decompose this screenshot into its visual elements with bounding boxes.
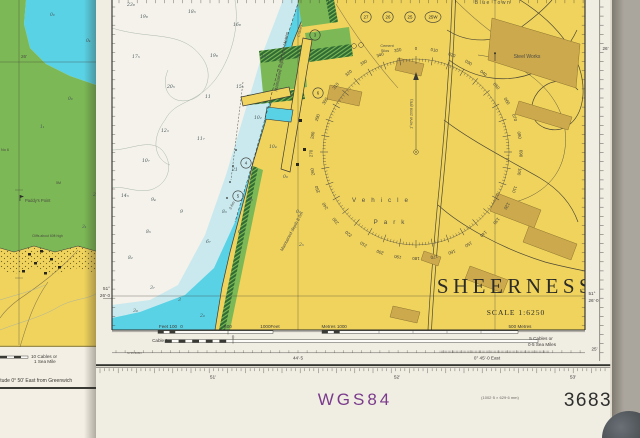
sounding: 0₉ <box>283 174 288 180</box>
sounding: 10₇ <box>142 158 150 164</box>
place-label: Silos <box>381 49 389 53</box>
sounding: 20₅ <box>166 84 175 90</box>
sounding: 10₄ <box>269 144 277 150</box>
left-scale-label-2: 1 Sea Mile <box>34 359 56 364</box>
sounding: 0₉ <box>68 97 73 102</box>
sounding: 10₂ <box>254 115 262 121</box>
sheet-edge <box>610 0 612 438</box>
place-label: 26' <box>21 54 27 59</box>
metres-500: 500 Metres <box>509 324 533 329</box>
sounding: 0₉ <box>50 13 55 18</box>
plan-title: SHEERNESS <box>437 274 595 298</box>
sounding: 19₈ <box>140 14 148 20</box>
place-label: Cliffs about 60ft high <box>32 234 63 238</box>
feet-1000: 1000Feet <box>260 324 280 329</box>
place-label: Vehicle <box>352 197 414 204</box>
sounding: 2₉ <box>199 313 205 319</box>
place-label: Blue Town <box>475 0 511 6</box>
sounding: 2₅ <box>298 242 304 248</box>
chart-photo: 26'le No 6Paddy's Point5MCliffs about 60… <box>0 0 640 438</box>
plan-lon-2: 0° 45'·0 East <box>474 355 501 360</box>
sounding: 1₁ <box>40 125 45 130</box>
sounding: 21 <box>231 167 238 173</box>
sounding: 17₉ <box>261 54 269 60</box>
magnetic-variation-label: 1°40'W 2008 (8'E) <box>410 99 414 129</box>
sheet-longitude-label: 51' <box>210 374 216 380</box>
plan-map: 0010020030040050060070080090100110120130… <box>112 0 595 330</box>
sounding: 9 <box>180 209 183 215</box>
sheet-longitude-label: 53' <box>570 374 576 380</box>
rose-bearing-label: 180 <box>412 256 420 261</box>
sounding: 6₇ <box>238 229 243 235</box>
lat-label-right-deg: 51° <box>589 291 596 296</box>
sounding: 3₇ <box>150 285 155 291</box>
sounding: 18₅ <box>188 9 196 15</box>
sounding: 9₄ <box>151 197 156 203</box>
berth-number: 25W <box>428 15 438 20</box>
sounding: 9₈ <box>248 197 253 203</box>
datum-label: WGS84 <box>318 390 393 409</box>
plan-lon-1: 44'·5 <box>293 355 304 360</box>
place-label: Paddy's Point <box>25 198 51 203</box>
dock-basin <box>265 107 293 122</box>
chart-number: 3683 <box>564 390 612 411</box>
sheet-shadow-right <box>612 0 624 438</box>
rose-bearing-label: 090 <box>519 150 524 158</box>
metres-label: Metres 100 <box>322 324 345 329</box>
main-sheet: 0010020030040050060070080090100110120130… <box>96 0 612 438</box>
sounding: 14₅ <box>121 193 129 199</box>
sounding: 3 <box>178 297 181 303</box>
outer-lat-bottom: 25' <box>592 347 598 352</box>
berth-number: 26 <box>386 15 391 20</box>
rose-bearing-label: 270 <box>309 149 314 157</box>
sounding: 15₆ <box>236 84 244 90</box>
sounding: 23₈ <box>126 2 135 8</box>
berth-number: 27 <box>364 15 369 20</box>
lat-label-left-deg: 51° <box>103 286 110 291</box>
sounding: 19₈ <box>210 53 218 59</box>
sheet-shadow-left <box>84 0 96 438</box>
sounding: 11 <box>205 94 211 100</box>
sounding: 11₇ <box>197 136 205 142</box>
metres-zero: 0 <box>344 324 347 329</box>
lat-label-left-min: 26'·0 <box>100 293 111 298</box>
place-label: Park <box>374 219 411 226</box>
sounding: 17₅ <box>132 54 140 60</box>
left-neatline <box>0 387 97 389</box>
outer-lat-top: 26' <box>603 46 609 51</box>
plan-scale: SCALE 1:6250 <box>487 308 545 317</box>
sounding: 12₃ <box>161 128 169 134</box>
lat-label-right-min: 26'·0 <box>589 298 600 303</box>
place-label: Steel Works <box>514 54 541 60</box>
sounding: 8₃ <box>222 209 227 215</box>
print-dimensions: (1002·5 × 629·6 mm) <box>481 395 519 400</box>
place-label: 5M <box>56 181 61 185</box>
left-longitude-label: Longitude 0° 50' East from Greenwich <box>0 378 72 384</box>
feet-zero: 0 <box>180 324 183 329</box>
sounding: 3₉ <box>133 308 138 314</box>
cables-right-1: 5 Cables or <box>529 336 553 341</box>
sounding: 8₅ <box>146 229 151 235</box>
sheet-neatline <box>96 364 612 366</box>
sounding: 6₇ <box>206 239 211 245</box>
place-label: le No 6 <box>0 148 9 152</box>
sounding: 8₂ <box>128 255 133 261</box>
sheet-longitude-label: 52' <box>394 374 400 380</box>
cables-right-2: 0·5 Sea Miles <box>528 342 557 347</box>
place-label: Cement <box>380 44 394 48</box>
feet-500: 500 <box>224 324 232 329</box>
sounding: 16₈ <box>233 22 241 28</box>
berth-number: 25 <box>408 15 413 20</box>
feet-label: Feet 100 <box>159 324 178 329</box>
